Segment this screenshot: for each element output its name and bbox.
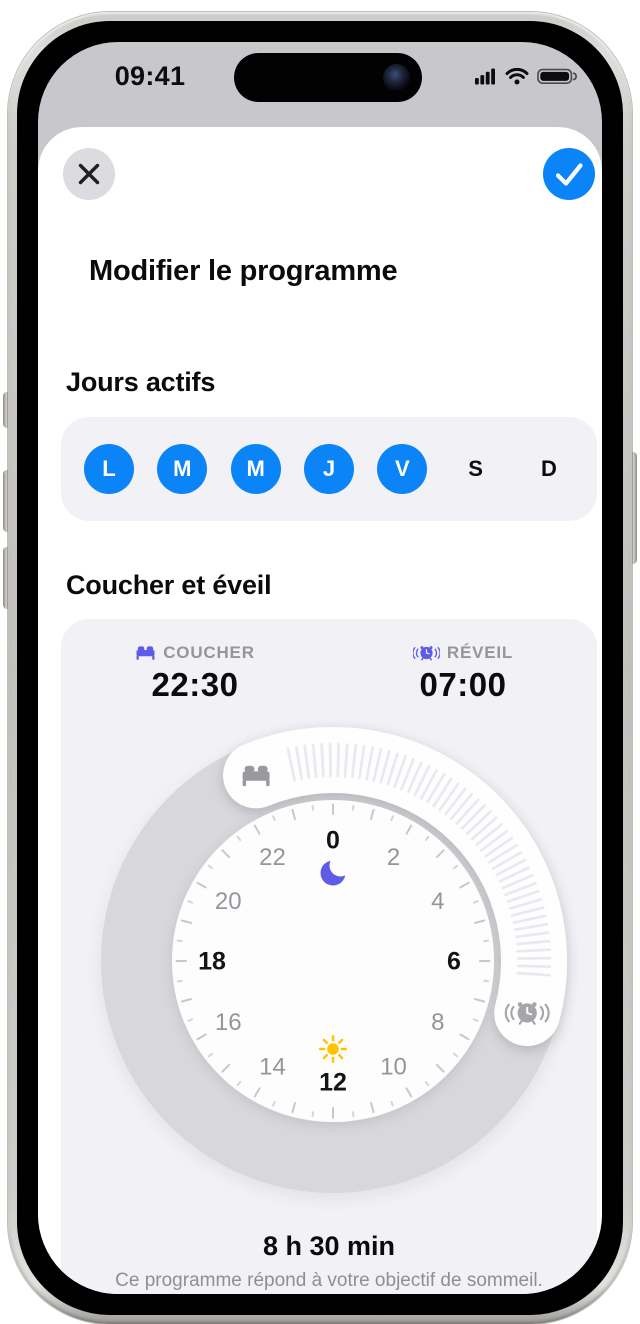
front-camera xyxy=(383,64,410,91)
iphone-frame: 09:41 xyxy=(8,12,632,1324)
times-row: COUCHER 22:30 xyxy=(61,643,597,704)
alarm-icon xyxy=(413,644,440,662)
bedtime-column: COUCHER 22:30 xyxy=(61,643,329,704)
hour-label-2: 2 xyxy=(387,844,400,871)
close-button[interactable] xyxy=(63,148,115,200)
wake-label: RÉVEIL xyxy=(447,643,513,663)
schedule-heading: Coucher et éveil xyxy=(66,570,271,601)
day-toggle-thursday[interactable]: J xyxy=(304,444,354,494)
day-toggle-friday[interactable]: V xyxy=(377,444,427,494)
hour-label-12: 12 xyxy=(319,1069,347,1097)
sun-icon xyxy=(320,1036,346,1062)
status-time: 09:41 xyxy=(85,61,215,92)
hour-label-16: 16 xyxy=(215,1009,242,1036)
page-title: Modifier le programme xyxy=(89,255,397,288)
wifi-icon xyxy=(505,68,529,85)
sleep-schedule-card: COUCHER 22:30 xyxy=(61,619,597,1294)
edit-schedule-sheet: Modifier le programme Jours actifs L M M… xyxy=(38,127,602,1294)
hour-label-14: 14 xyxy=(259,1053,286,1080)
cellular-signal-icon xyxy=(475,68,497,85)
confirm-button[interactable] xyxy=(543,148,595,200)
day-toggle-wednesday[interactable]: M xyxy=(231,444,281,494)
day-toggle-monday[interactable]: L xyxy=(84,444,134,494)
dynamic-island xyxy=(234,53,422,102)
bedtime-label: COUCHER xyxy=(163,643,255,663)
day-toggle-tuesday[interactable]: M xyxy=(157,444,207,494)
sleep-dial[interactable]: 0246810121416182022 xyxy=(61,717,597,1229)
screenshot-root: 09:41 xyxy=(0,0,640,1324)
screen: 09:41 xyxy=(38,42,602,1294)
hour-label-20: 20 xyxy=(215,888,242,915)
hour-label-22: 22 xyxy=(259,844,286,871)
checkmark-icon xyxy=(543,148,595,200)
sleep-goal-note: Ce programme répond à votre objectif de … xyxy=(61,1270,597,1292)
wake-value: 07:00 xyxy=(329,666,597,704)
hour-label-4: 4 xyxy=(431,888,444,915)
wake-column: RÉVEIL 07:00 xyxy=(329,643,597,704)
active-days-card: L M M J V S D xyxy=(61,417,597,521)
hour-label-18: 18 xyxy=(198,948,226,976)
bedtime-value: 22:30 xyxy=(61,666,329,704)
active-days-heading: Jours actifs xyxy=(66,367,215,398)
hour-label-10: 10 xyxy=(380,1053,407,1080)
status-icons xyxy=(475,67,577,86)
hour-label-8: 8 xyxy=(431,1009,444,1036)
hour-label-6: 6 xyxy=(447,948,461,976)
day-toggle-sunday[interactable]: D xyxy=(524,444,574,494)
sleep-duration: 8 h 30 min xyxy=(61,1231,597,1262)
hour-label-0: 0 xyxy=(326,827,340,855)
bezel: 09:41 xyxy=(17,21,623,1315)
close-icon xyxy=(63,148,115,200)
battery-icon xyxy=(537,67,577,86)
bed-icon xyxy=(135,646,156,660)
day-toggle-saturday[interactable]: S xyxy=(451,444,501,494)
